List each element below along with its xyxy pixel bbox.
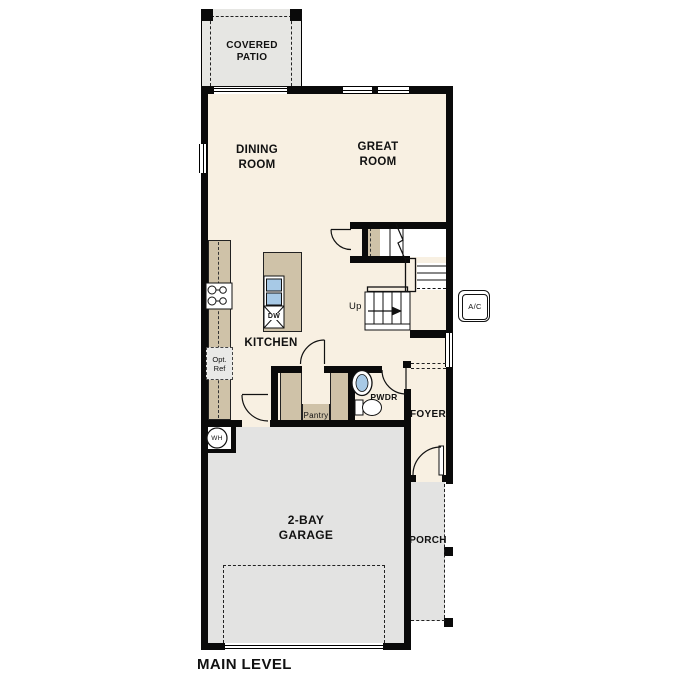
front-door [413,446,444,475]
cooktop [206,283,232,309]
island-sink [264,276,284,306]
garage-entry-door [242,395,268,422]
stairs-up-label: Up [349,301,362,312]
staircase-railing [368,259,416,292]
water-heater-label: WH [211,435,222,442]
dining-room-label: DINING ROOM [236,143,278,172]
understair-closet-door [331,230,351,250]
powder-door [382,368,406,394]
great-room-label: GREAT ROOM [358,140,399,169]
garage-label: 2-BAY GARAGE [279,513,333,542]
powder-sink [352,371,372,396]
staircase-winder-treads [417,266,446,280]
covered-patio-label: COVERED PATIO [226,40,278,64]
kitchen-label: KITCHEN [244,337,297,349]
dishwasher-label: DW [267,313,281,320]
pantry-label: Pantry [304,411,329,420]
level-title: MAIN LEVEL [197,656,292,673]
staircase-upper-flight [390,224,405,259]
doors-and-fixtures-layer [0,0,687,687]
foyer-label: FOYER [410,409,446,420]
floor-plan: Opt. Ref A/C [0,0,687,687]
porch-label: PORCH [409,535,447,546]
powder-room-label: PWDR [370,392,397,402]
pantry-door [301,340,325,364]
